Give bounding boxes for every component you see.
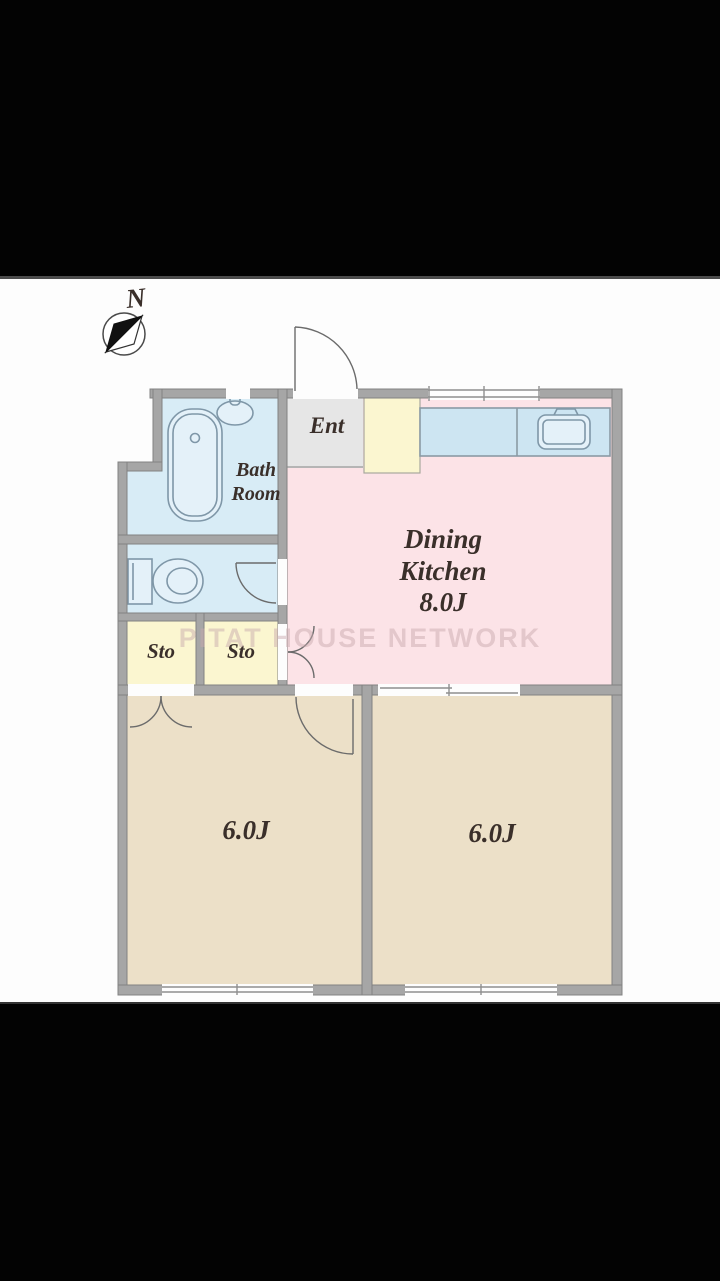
room-right-size: 6.0J: [432, 818, 552, 849]
opening-room-left-door: [295, 684, 353, 696]
wall-bath-left: [153, 389, 162, 465]
entrance-label: Ent: [290, 413, 364, 439]
bathroom-label: Bath Room: [221, 458, 291, 506]
opening-entrance: [293, 388, 358, 399]
top-letterbox-bar: [0, 0, 720, 279]
wall-top: [150, 389, 622, 398]
opening-bath-faucet: [226, 388, 250, 399]
compass-icon: [103, 313, 145, 355]
phone-screenshot: N Ent Bath Room Sto Sto Dining Kitchen 8…: [0, 0, 720, 1281]
room-left-size: 6.0J: [186, 815, 306, 846]
wall-bath-toilet: [118, 535, 287, 544]
toilet-icon: [128, 559, 203, 604]
bottom-letterbox-bar: [0, 1002, 720, 1281]
floorplan-canvas: N Ent Bath Room Sto Sto Dining Kitchen 8…: [0, 279, 720, 1002]
compass-north-label: N: [124, 282, 147, 315]
shoe-cabinet: [364, 397, 420, 473]
dining-kitchen-size: 8.0J: [363, 587, 523, 618]
entrance-door-icon: [295, 327, 357, 391]
kitchen-counter-icon: [420, 408, 610, 456]
wall-room-divider: [362, 685, 372, 995]
opening-toilet-door: [278, 559, 287, 605]
dining-kitchen-label: Dining Kitchen: [363, 523, 523, 587]
watermark-text: PITAT HOUSE NETWORK: [0, 623, 720, 654]
opening-closet-doors: [128, 684, 194, 696]
bathtub-icon: [168, 409, 222, 521]
